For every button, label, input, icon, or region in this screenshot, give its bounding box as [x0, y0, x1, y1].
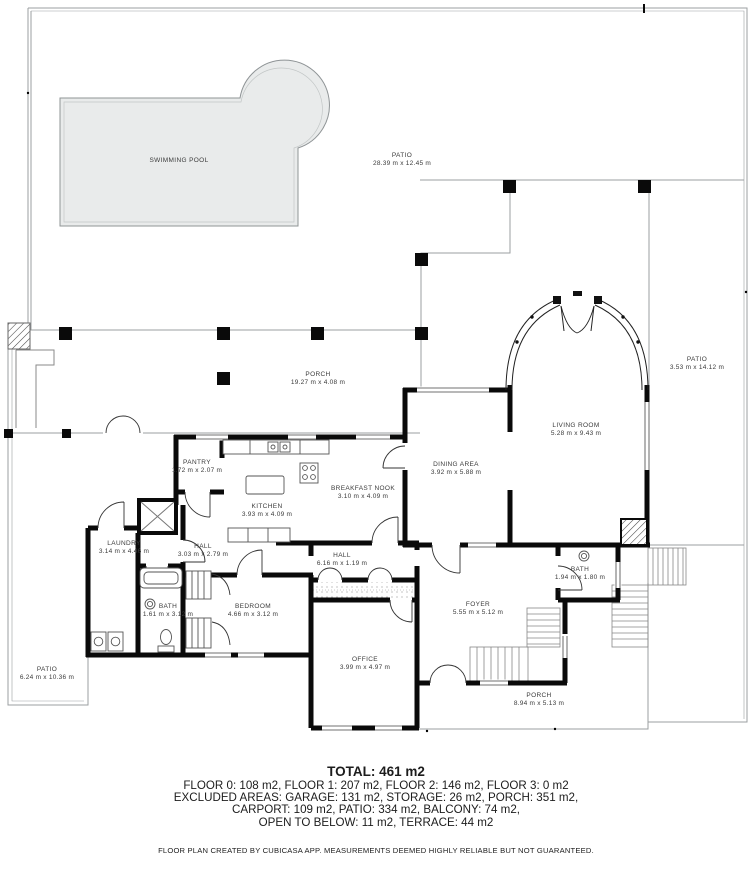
- kitchen-cabinets: [228, 528, 290, 542]
- room-label-bath-east: BATH 1.94 m x 1.80 m: [555, 566, 605, 582]
- summary-footer: TOTAL: 461 m2 FLOOR 0: 108 m2, FLOOR 1: …: [0, 764, 752, 855]
- floor-plan-page: SWIMMING POOL PATIO 28.39 m x 12.45 m PO…: [0, 0, 752, 872]
- room-label-patio-north: PATIO 28.39 m x 12.45 m: [373, 152, 431, 168]
- room-label-laundry: LAUNDRY 3.14 m x 4.46 m: [99, 540, 149, 556]
- kitchen-island: [246, 476, 284, 494]
- excluded-areas-2: CARPORT: 109 m2, PATIO: 334 m2, BALCONY:…: [0, 804, 752, 816]
- door-swings: [98, 416, 582, 683]
- disclaimer-text: FLOOR PLAN CREATED BY CUBICASA APP. MEAS…: [0, 846, 752, 855]
- room-label-living-room: LIVING ROOM 5.28 m x 9.43 m: [551, 422, 601, 438]
- room-label-kitchen: KITCHEN 3.93 m x 4.09 m: [242, 503, 292, 519]
- room-label-pantry: PANTRY 1.72 m x 2.07 m: [172, 459, 222, 475]
- room-label-porch-north: PORCH 19.27 m x 4.08 m: [291, 371, 345, 387]
- room-label-bedroom: BEDROOM 4.66 m x 3.12 m: [228, 603, 278, 619]
- wardrobe: [186, 618, 211, 648]
- stove: [300, 463, 318, 483]
- room-label-patio-southwest: PATIO 6.24 m x 10.36 m: [20, 666, 74, 682]
- room-label-breakfast-nook: BREAKFAST NOOK 3.10 m x 4.09 m: [331, 485, 395, 501]
- wardrobe: [186, 571, 211, 599]
- room-label-patio-east: PATIO 3.53 m x 14.12 m: [670, 356, 724, 372]
- toilet: [158, 646, 174, 652]
- room-label-foyer: FOYER 5.55 m x 5.12 m: [453, 601, 503, 617]
- hall-deck-band: [313, 582, 414, 599]
- room-label-porch-south: PORCH 8.94 m x 5.13 m: [514, 692, 564, 708]
- room-label-swimming-pool: SWIMMING POOL: [149, 157, 208, 165]
- room-label-office: OFFICE 3.99 m x 4.97 m: [340, 656, 390, 672]
- room-label-hall-west: HALL 3.03 m x 2.79 m: [178, 543, 228, 559]
- exterior-steps-northwest: [16, 350, 54, 428]
- elevator-shaft: [139, 500, 176, 533]
- room-label-dining-area: DINING AREA 3.92 m x 5.88 m: [431, 461, 481, 477]
- room-label-bath-west: BATH 1.61 m x 3.12 m: [143, 603, 193, 619]
- excluded-areas-3: OPEN TO BELOW: 11 m2, TERRACE: 44 m2: [0, 817, 752, 829]
- living-room-bay-arch: [506, 291, 648, 390]
- swimming-pool-shape: [60, 60, 329, 226]
- room-label-hall-south: HALL 6.16 m x 1.19 m: [317, 552, 367, 568]
- hatched-area-northwest: [8, 323, 30, 349]
- fireplace-hatch: [621, 519, 647, 545]
- floor-plan-drawing: [0, 0, 752, 872]
- total-area: TOTAL: 461 m2: [0, 764, 752, 780]
